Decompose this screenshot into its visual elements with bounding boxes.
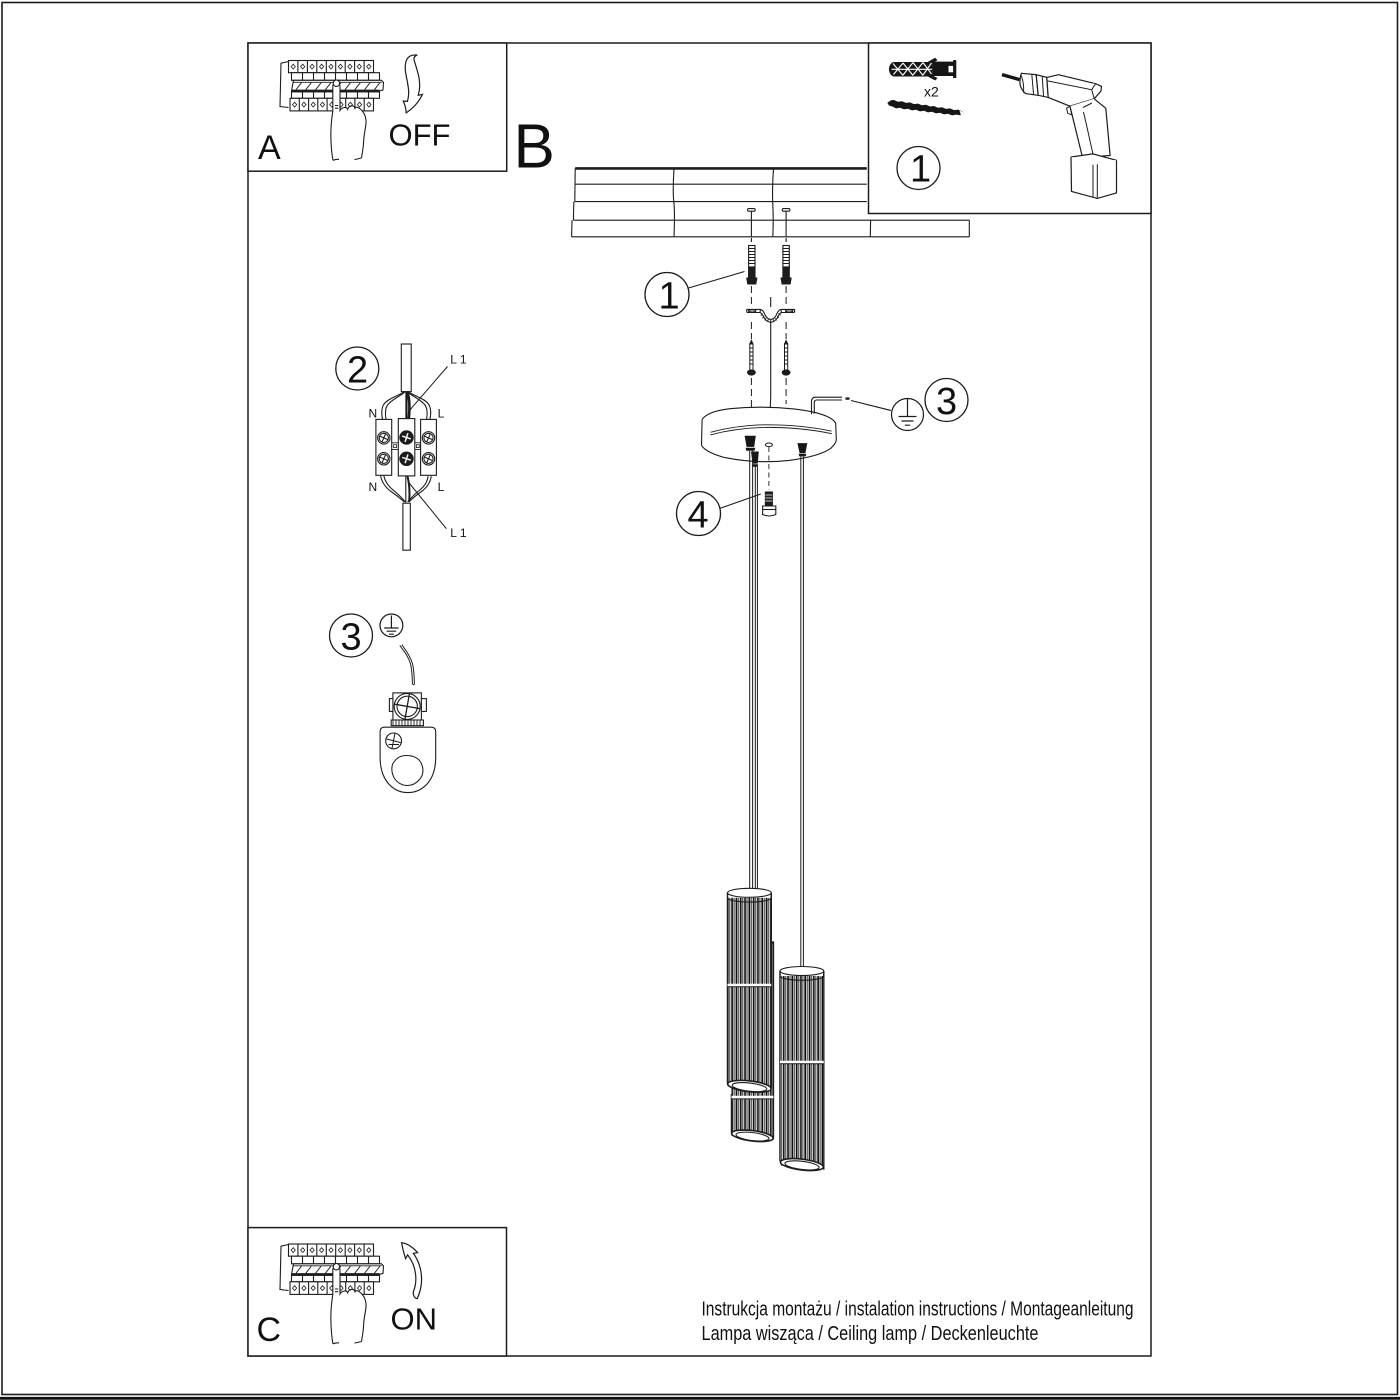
svg-text:C: C [257,1311,282,1349]
svg-text:3: 3 [341,617,362,659]
svg-text:1: 1 [659,276,680,318]
svg-text:ON: ON [391,1302,438,1337]
svg-text:Lampa wisząca / Ceiling lamp /: Lampa wisząca / Ceiling lamp / Deckenleu… [702,1322,1039,1345]
svg-text:Instrukcja montażu / instalati: Instrukcja montażu / instalation instruc… [702,1298,1134,1321]
svg-text:OFF: OFF [389,118,451,153]
svg-text:N: N [369,407,378,421]
svg-text:B: B [514,113,555,182]
svg-text:x2: x2 [924,84,939,100]
svg-text:L 1: L 1 [450,353,467,367]
svg-text:N: N [369,480,378,494]
svg-text:1: 1 [910,149,931,191]
svg-text:A: A [258,129,281,167]
svg-text:3: 3 [936,381,957,423]
svg-text:L: L [438,407,445,421]
svg-text:L 1: L 1 [450,526,467,540]
svg-text:4: 4 [688,495,709,537]
svg-text:2: 2 [347,350,368,392]
svg-text:L: L [438,480,445,494]
